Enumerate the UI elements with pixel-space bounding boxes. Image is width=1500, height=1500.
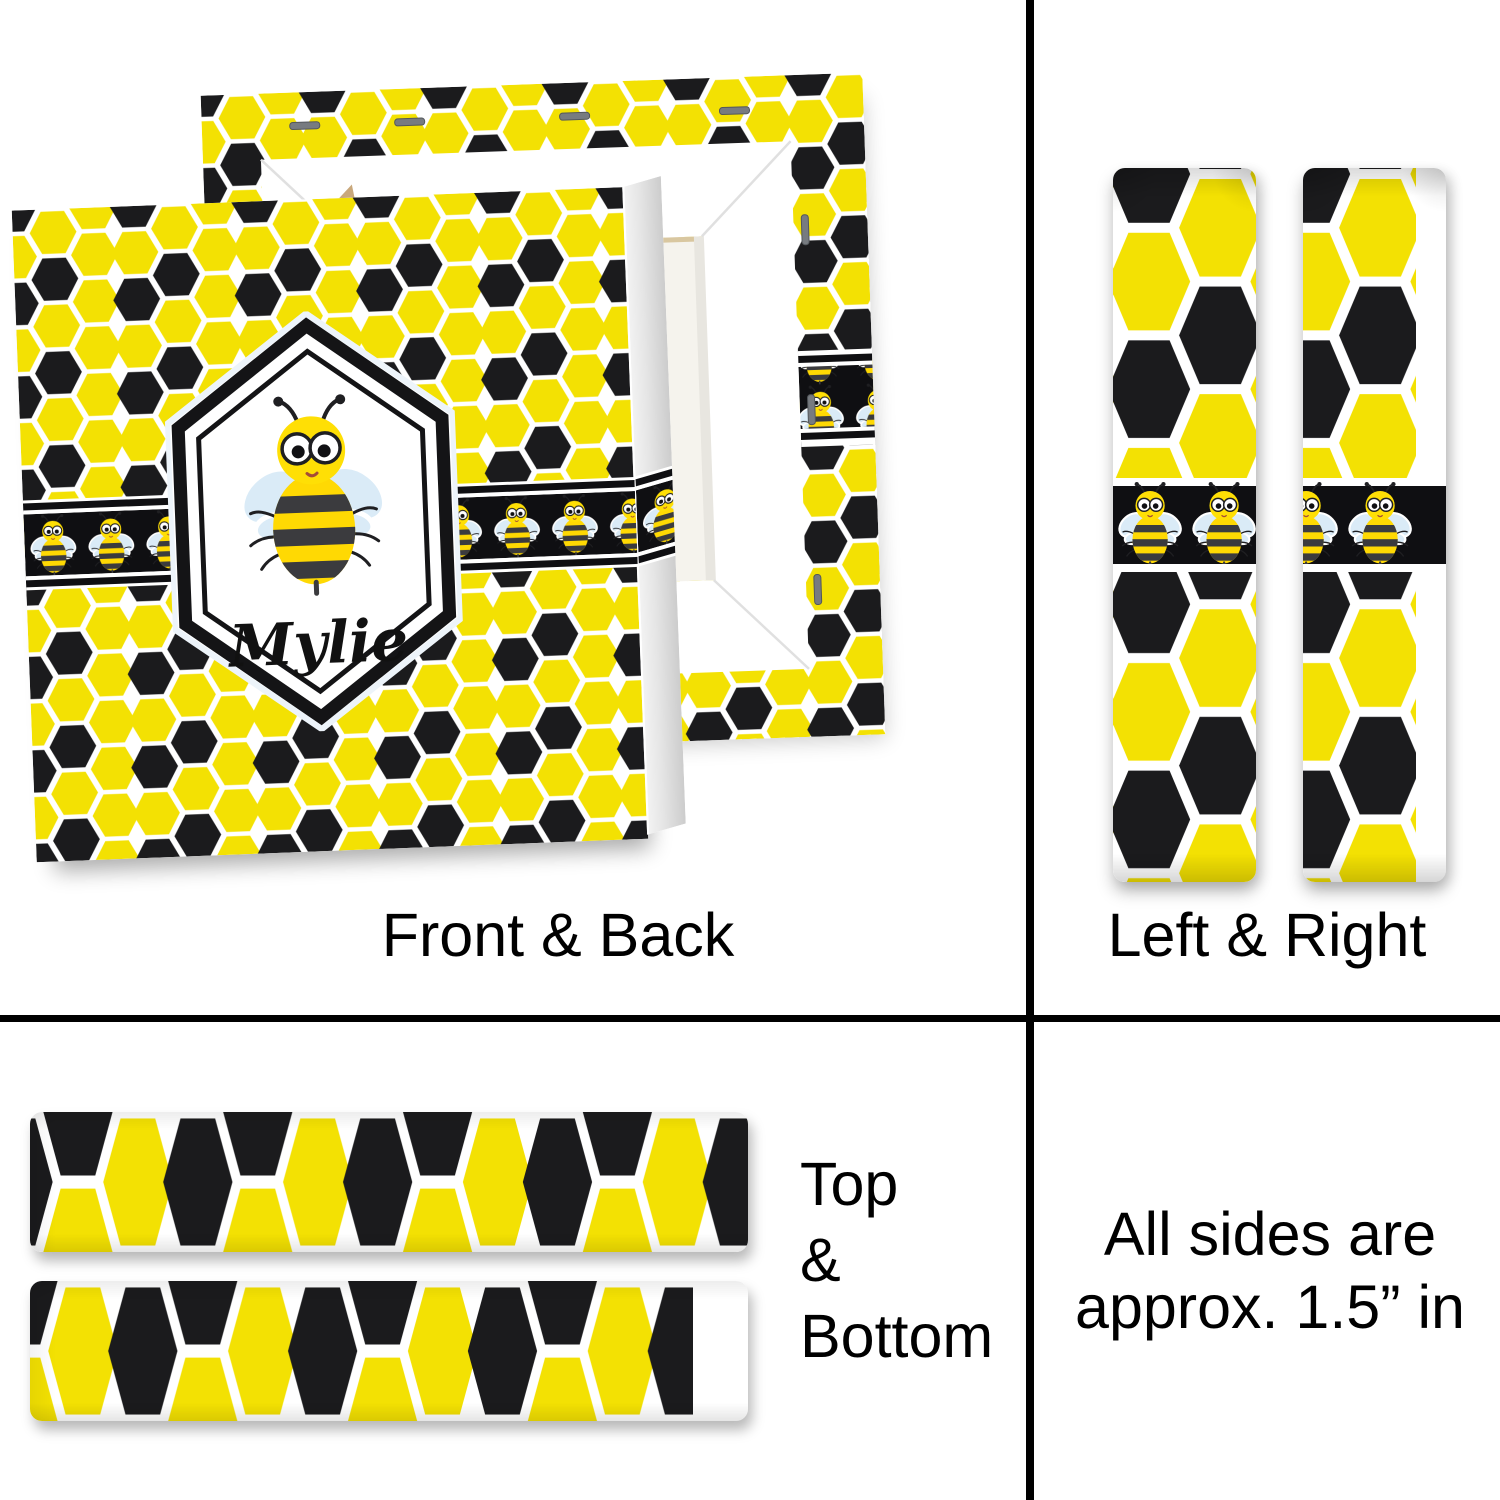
honeycomb-pattern-strip — [1113, 168, 1256, 882]
left-side-strip — [1113, 168, 1256, 882]
front-back-section: Mylie Front & Back — [0, 0, 1026, 1015]
right-side-strip — [1303, 168, 1446, 882]
size-note-label: All sides are approx. 1.5” in — [1040, 1198, 1500, 1344]
left-right-label: Left & Right — [1036, 898, 1498, 972]
band-line — [1303, 564, 1446, 572]
bee-band-bees — [1303, 478, 1446, 572]
size-note-line: approx. 1.5” in — [1040, 1271, 1500, 1344]
name-medallion: Mylie — [161, 306, 467, 737]
front-back-label: Front & Back — [158, 898, 958, 972]
top-side-strip — [30, 1112, 748, 1252]
band-line — [1113, 564, 1256, 572]
vertical-divider — [1026, 0, 1034, 1500]
band-line — [1113, 478, 1256, 486]
bee-band-strip — [1303, 478, 1446, 572]
left-right-section: Left & Right — [1034, 0, 1500, 1015]
top-bottom-line: Top — [800, 1146, 993, 1222]
size-note-section: All sides are approx. 1.5” in — [1034, 1022, 1500, 1500]
bee-band-side — [635, 466, 675, 567]
top-bottom-section: Top & Bottom — [0, 1022, 1026, 1500]
top-bottom-line: Bottom — [800, 1298, 993, 1374]
size-note-line: All sides are — [1040, 1198, 1500, 1271]
bottom-side-strip — [30, 1281, 748, 1421]
bee-band-bees — [1113, 478, 1256, 572]
bee-band-bees — [636, 480, 675, 553]
honeycomb-pattern-strip — [30, 1281, 748, 1421]
honeycomb-pattern-strip — [1303, 168, 1446, 882]
top-bottom-line: & — [800, 1222, 993, 1298]
canvas-front-mockup: Mylie — [12, 186, 685, 862]
horizontal-divider — [0, 1015, 1500, 1022]
honeycomb-pattern-strip — [30, 1112, 748, 1252]
canvas-front-face: Mylie — [12, 187, 649, 862]
personalization-name: Mylie — [226, 606, 409, 681]
top-bottom-label: Top & Bottom — [800, 1146, 993, 1374]
bee-band-strip — [1113, 478, 1256, 572]
band-line — [1303, 478, 1446, 486]
